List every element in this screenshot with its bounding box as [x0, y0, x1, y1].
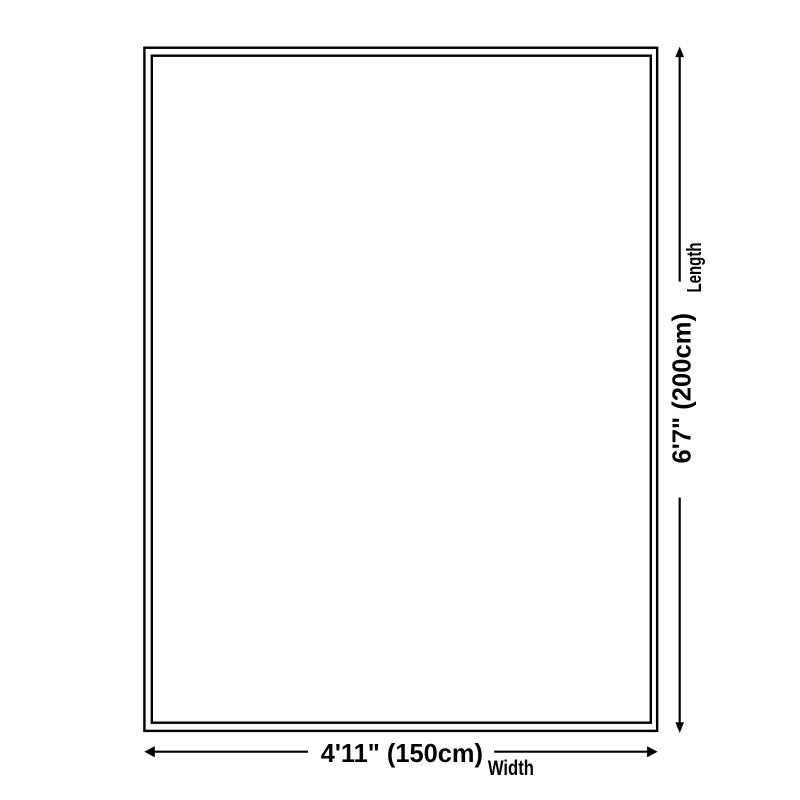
svg-text:6'7" (200cm): 6'7" (200cm) [666, 313, 696, 464]
svg-text:Width: Width [488, 757, 534, 780]
svg-text:Length: Length [684, 243, 706, 293]
svg-text:4'11" (150cm): 4'11" (150cm) [321, 738, 483, 768]
